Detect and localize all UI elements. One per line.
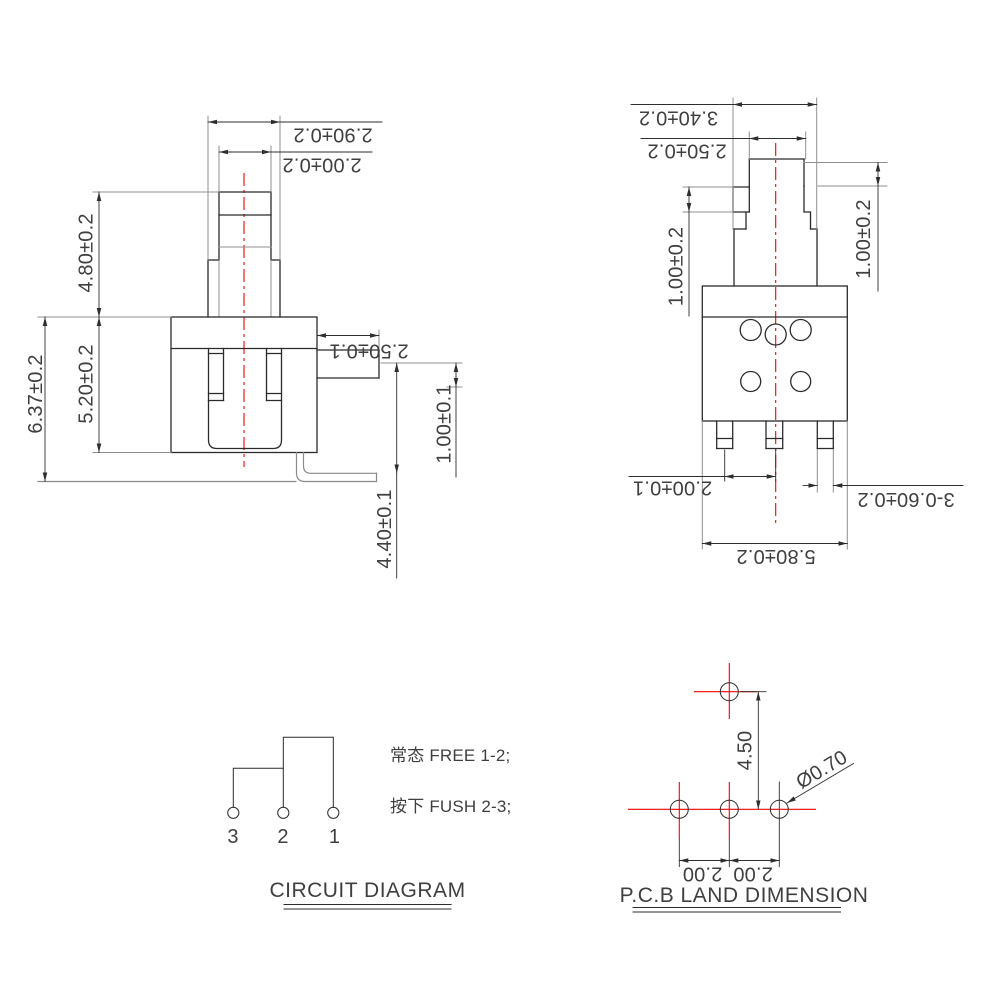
front-view-body-outline	[702, 286, 847, 421]
dim-pin-pitch: 2.00±0.1	[633, 477, 712, 499]
circuit-note-normal: 常态 FREE 1-2;	[390, 746, 510, 765]
body-hole	[791, 372, 811, 392]
dim-body-height: 5.20±0.2	[76, 344, 98, 423]
front-view-dimension-labels: 3.40±0.2 2.50±0.2 1.00±0.2 1.00±0.2 2.00…	[633, 107, 955, 568]
dim-cap-height-left: 1.00±0.2	[666, 227, 688, 306]
front-view: 3.40±0.2 2.50±0.2 1.00±0.2 1.00±0.2 2.00…	[629, 98, 963, 567]
dim-cap-width: 2.50±0.2	[647, 140, 726, 162]
pcb-title: P.C.B LAND DIMENSION	[620, 884, 869, 907]
front-view-extension-lines	[683, 98, 887, 549]
circuit-diagram: 3 2 1 常态 FREE 1-2; 按下 FUSH 2-3; CIRCUIT …	[227, 737, 511, 909]
side-view-extension-lines	[38, 116, 462, 453]
switch-drawing-canvas: 2.90±0.2 2.00±0.2 4.80±0.2 5.20±0.2 6.37…	[0, 0, 1000, 1001]
dim-pitch-right: 2.00	[733, 863, 773, 885]
circuit-note-pressed: 按下 FUSH 2-3;	[390, 797, 511, 816]
dim-hole-diameter: Ø0.70	[793, 746, 852, 793]
front-view-plunger-outline	[733, 159, 817, 286]
side-view-bent-lead	[297, 453, 377, 482]
dim-plunger-height: 4.80±0.2	[76, 213, 98, 292]
side-view-dimension-labels: 2.90±0.2 2.00±0.2 4.80±0.2 5.20±0.2 6.37…	[25, 124, 456, 569]
engineering-drawing-page: 2.90±0.2 2.00±0.2 4.80±0.2 5.20±0.2 6.37…	[0, 0, 1000, 1001]
terminal-circle-2	[278, 807, 289, 818]
dim-tab-length: 2.50±0.1	[329, 340, 408, 362]
terminal-label-2: 2	[277, 826, 288, 848]
dim-plunger-outer-width: 2.90±0.2	[293, 124, 372, 146]
dim-pin-width: 3-0.60±0.2	[857, 488, 955, 510]
circuit-terminals	[228, 807, 339, 818]
terminal-circle-1	[328, 807, 339, 818]
terminal-circle-3	[228, 807, 239, 818]
pcb-title-underline	[633, 908, 841, 913]
dim-tab-offset: 1.00±0.1	[434, 384, 456, 463]
circuit-title-underline	[284, 905, 451, 910]
dim-body-width: 5.80±0.2	[736, 545, 815, 567]
dim-lead-drop: 4.40±0.1	[374, 489, 396, 568]
dim-total-height: 6.37±0.2	[25, 354, 47, 433]
dim-boss-width: 3.40±0.2	[639, 107, 718, 129]
terminal-label-1: 1	[329, 826, 340, 848]
pcb-land-view: 4.50 Ø0.70 2.00 2.00 P.C.B LAND DIMENSIO…	[620, 663, 869, 912]
terminal-label-3: 3	[227, 826, 238, 848]
dim-plunger-inner-width: 2.00±0.2	[282, 154, 361, 176]
pcb-dimension-labels: 4.50 Ø0.70 2.00 2.00	[683, 731, 852, 885]
circuit-wires	[233, 737, 333, 807]
dim-pitch-left: 2.00	[683, 863, 723, 885]
dim-row-pitch: 4.50	[735, 731, 757, 771]
side-view-plunger-inner-lines	[219, 247, 271, 317]
dim-cap-height-right: 1.00±0.2	[853, 199, 875, 278]
front-view-pins	[717, 421, 834, 449]
circuit-terminal-labels: 3 2 1	[227, 826, 340, 848]
body-hole	[741, 372, 761, 392]
side-view: 2.90±0.2 2.00±0.2 4.80±0.2 5.20±0.2 6.37…	[25, 116, 462, 578]
circuit-title: CIRCUIT DIAGRAM	[269, 879, 465, 902]
side-view-body-outline	[171, 317, 379, 453]
body-hole	[740, 320, 761, 341]
body-hole	[790, 320, 811, 341]
